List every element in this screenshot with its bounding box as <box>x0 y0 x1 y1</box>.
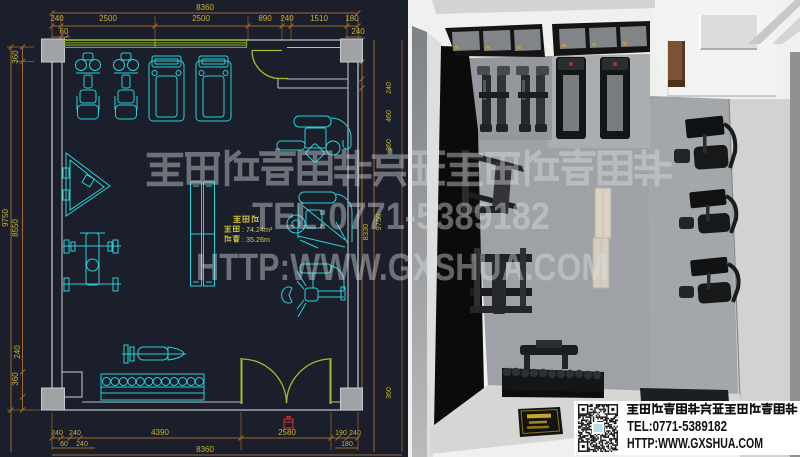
svg-text:240: 240 <box>280 14 294 23</box>
svg-text:190: 190 <box>335 430 347 437</box>
svg-text:360: 360 <box>11 372 20 386</box>
svg-text:8360: 8360 <box>196 445 214 454</box>
svg-text:360: 360 <box>386 387 393 399</box>
svg-text:60: 60 <box>60 441 68 448</box>
svg-text:180: 180 <box>345 14 359 23</box>
svg-text:4390: 4390 <box>151 428 169 437</box>
svg-text:TEL:0771-5389182: TEL:0771-5389182 <box>252 196 550 238</box>
svg-text:1510: 1510 <box>310 14 328 23</box>
svg-text:HTTP:WWW.GXSHUA.COM: HTTP:WWW.GXSHUA.COM <box>196 247 608 289</box>
svg-text:TEL:0771-5389182: TEL:0771-5389182 <box>627 419 727 435</box>
svg-text:240: 240 <box>69 430 81 437</box>
svg-text:180: 180 <box>341 441 353 448</box>
svg-text:240: 240 <box>51 430 63 437</box>
svg-text:240: 240 <box>76 441 88 448</box>
svg-text:240: 240 <box>50 14 64 23</box>
svg-text:8550: 8550 <box>11 219 20 237</box>
svg-text:9750: 9750 <box>1 209 10 227</box>
svg-text:240: 240 <box>386 82 393 94</box>
svg-text:2500: 2500 <box>192 14 210 23</box>
svg-text:8360: 8360 <box>196 3 214 12</box>
svg-text:890: 890 <box>258 14 272 23</box>
svg-text:HTTP:WWW.GXSHUA.COM: HTTP:WWW.GXSHUA.COM <box>627 436 763 452</box>
svg-text:240: 240 <box>13 345 22 359</box>
svg-text:240: 240 <box>349 430 361 437</box>
svg-text:2580: 2580 <box>278 428 296 437</box>
svg-text:460: 460 <box>386 110 393 122</box>
svg-text:360: 360 <box>11 50 20 64</box>
svg-text:2500: 2500 <box>99 14 117 23</box>
